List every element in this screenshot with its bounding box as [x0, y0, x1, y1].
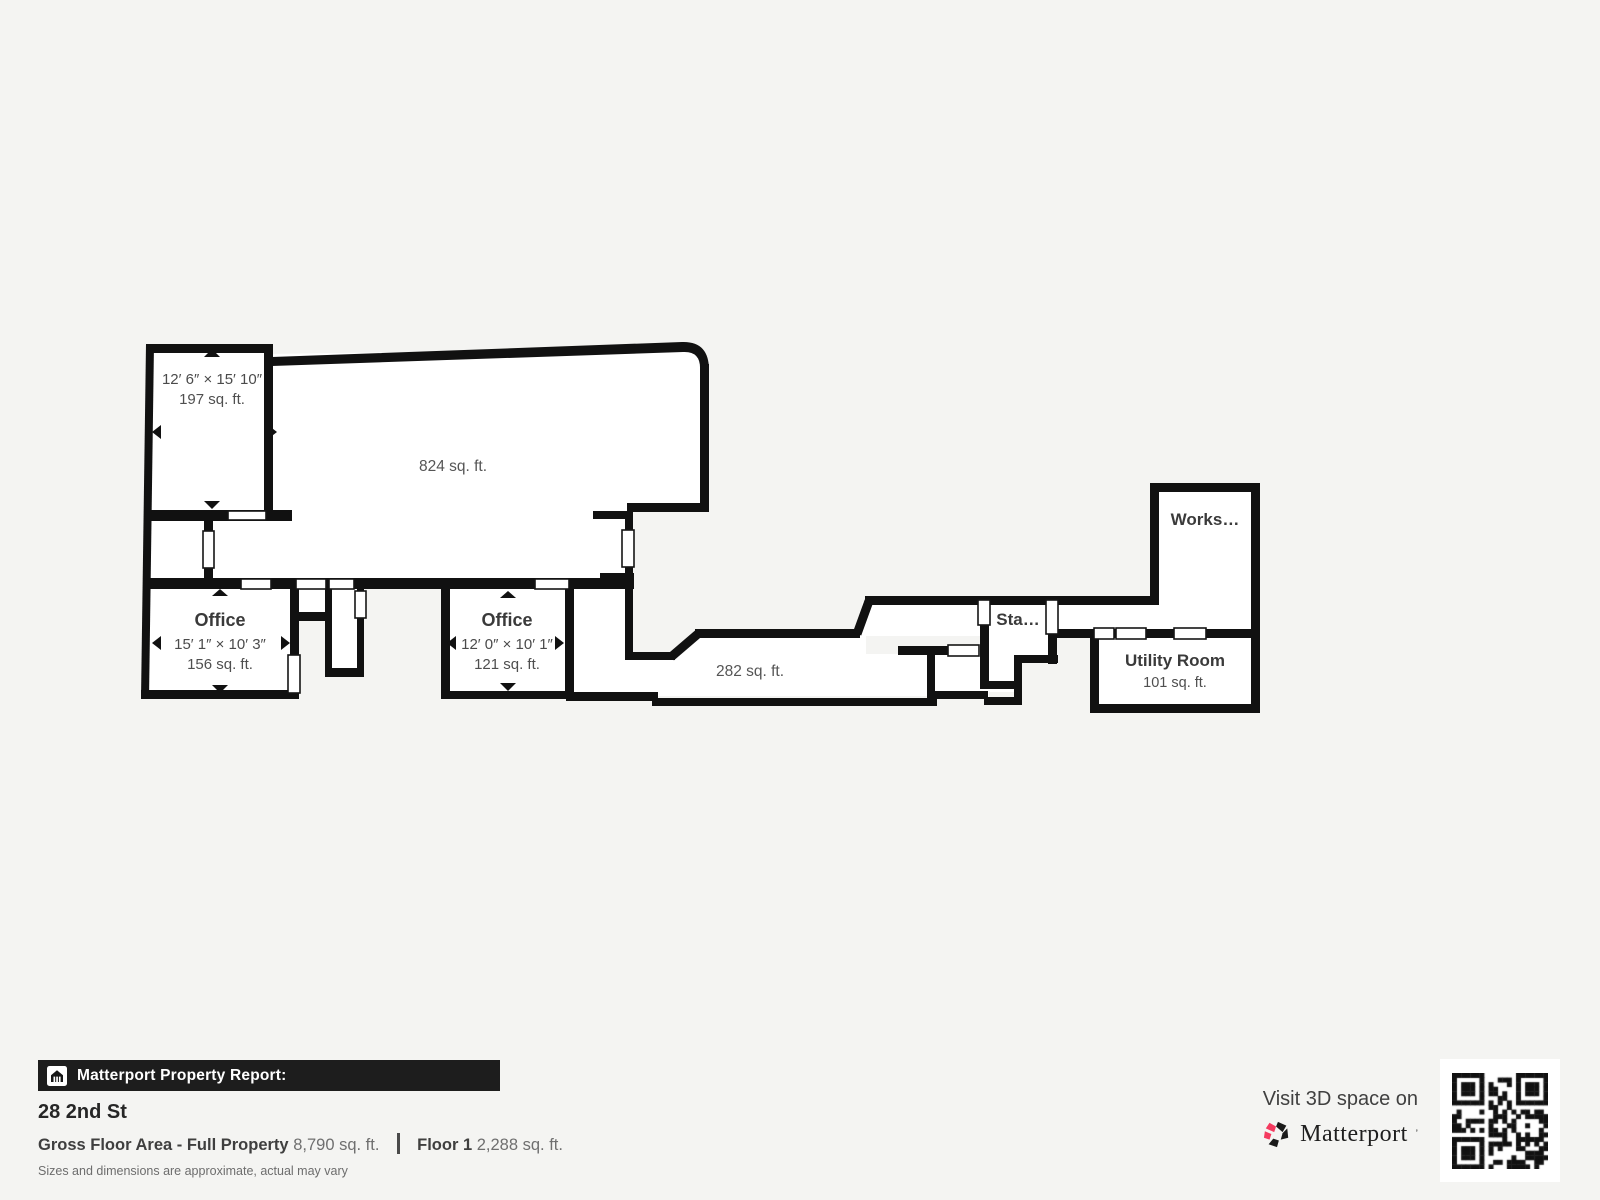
report-badge-bar: Matterport Property Report:	[38, 1060, 500, 1091]
qr-card	[1440, 1059, 1560, 1182]
floor-label: Floor 1	[417, 1136, 472, 1154]
page: 12′ 6″ × 15′ 10″ 197 sq. ft. 824 sq. ft.…	[0, 0, 1600, 1200]
disclaimer-text: Sizes and dimensions are approximate, ac…	[38, 1164, 348, 1178]
property-address: 28 2nd St	[38, 1101, 127, 1124]
utility-room-name: Utility Room	[1125, 651, 1225, 670]
qr-code	[1452, 1073, 1548, 1169]
gross-floor-area-value: 8,790 sq. ft.	[293, 1136, 379, 1154]
divider	[397, 1133, 400, 1154]
stairs-label: Sta…	[996, 610, 1039, 629]
floor-area-value: 2,288 sq. ft.	[477, 1136, 563, 1154]
room-197-area: 197 sq. ft.	[179, 391, 245, 408]
hall-282-label: 282 sq. ft.	[716, 663, 784, 680]
floorplan-svg: 12′ 6″ × 15′ 10″ 197 sq. ft. 824 sq. ft.…	[0, 0, 1600, 1200]
office-156-name: Office	[194, 610, 245, 630]
visit-3d-text: Visit 3D space on	[1150, 1088, 1418, 1111]
trademark-mark: ʼ	[1416, 1129, 1418, 1140]
room-197-dims: 12′ 6″ × 15′ 10″	[162, 371, 263, 388]
matterport-logo-icon	[1262, 1120, 1292, 1148]
utility-room-area: 101 sq. ft.	[1143, 675, 1207, 691]
building-icon	[47, 1066, 67, 1086]
office-121-name: Office	[481, 610, 532, 630]
open-area-824-label: 824 sq. ft.	[419, 458, 487, 475]
gross-floor-area-label: Gross Floor Area - Full Property	[38, 1136, 289, 1154]
matterport-wordmark: Matterport	[1300, 1121, 1408, 1148]
office-156-area: 156 sq. ft.	[187, 656, 253, 673]
office-121-area: 121 sq. ft.	[474, 656, 540, 673]
office-156-dims: 15′ 1″ × 10′ 3″	[174, 636, 266, 653]
floor-area-line: Gross Floor Area - Full Property 8,790 s…	[38, 1133, 563, 1155]
promo-block: Visit 3D space on Matterportʼ	[1150, 1088, 1418, 1148]
report-badge-label: Matterport Property Report:	[77, 1067, 287, 1085]
office-121-dims: 12′ 0″ × 10′ 1″	[461, 636, 553, 653]
workshop-label: Works…	[1171, 510, 1240, 529]
